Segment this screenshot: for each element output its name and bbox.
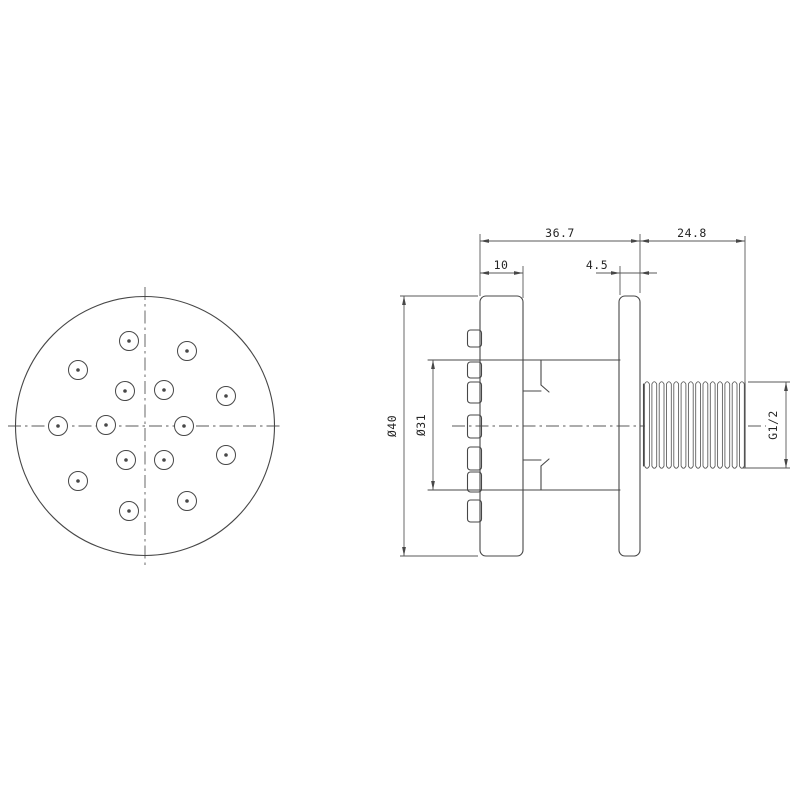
thread-crest [659, 382, 664, 469]
nozzle-center-dot [224, 394, 228, 398]
dimension-arrowhead [611, 271, 620, 275]
dimension-arrowhead [431, 481, 435, 490]
dim-label-outer-diameter: Ø40 [385, 415, 399, 437]
dim-outer-diameter: Ø40 [385, 296, 406, 556]
nozzle-center-dot [224, 453, 228, 457]
nozzle-center-dot [185, 349, 189, 353]
dim-thread-length: 24.8 [640, 226, 745, 243]
dim-label-faceplate-thickness: 10 [494, 258, 509, 272]
dimension-arrowhead [514, 271, 523, 275]
dimension-arrowhead [784, 459, 788, 468]
thread-crest [652, 382, 657, 469]
dimension-arrowhead [402, 547, 406, 556]
nozzle-tab [468, 472, 482, 492]
dim-label-flange-thickness: 4.5 [586, 258, 608, 272]
thread-crest [688, 382, 693, 469]
nozzle-center-dot [76, 368, 80, 372]
extension-lines [400, 234, 790, 556]
nozzle-center-dot [104, 423, 108, 427]
drawing-canvas: 36.724.8104.5Ø40Ø31G1/2 [0, 0, 800, 800]
nozzle-tab [468, 382, 482, 403]
dimension-arrowhead [784, 382, 788, 391]
thread-section [645, 382, 745, 469]
thread-crest [696, 382, 701, 469]
nozzle-center-dot [123, 389, 127, 393]
nozzle-tab [468, 447, 482, 470]
dim-thread-spec: G1/2 [766, 382, 788, 468]
thread-crest [740, 382, 745, 469]
nozzle-tab [468, 500, 482, 522]
dim-label-thread-spec: G1/2 [766, 410, 780, 440]
nozzle-tab [468, 415, 482, 438]
nozzle-tab [468, 330, 482, 347]
dimension-arrowhead [736, 239, 745, 243]
thread-crest [725, 382, 730, 469]
dim-top-width: 36.7 [480, 226, 640, 243]
dim-flange-thickness: 4.5 [586, 258, 657, 275]
nozzle-center-dot [162, 388, 166, 392]
dim-label-thread-length: 24.8 [677, 226, 707, 240]
thread-crest [645, 382, 650, 469]
side-view [428, 296, 766, 556]
nozzle-center-dot [127, 339, 131, 343]
dimension-arrowhead [631, 239, 640, 243]
thread-crest [681, 382, 686, 469]
thread-crest [667, 382, 672, 469]
dim-label-body-diameter: Ø31 [414, 414, 428, 436]
thread-crest [703, 382, 708, 469]
dimension-arrowhead [640, 239, 649, 243]
dimension-arrowhead [480, 271, 489, 275]
front-view [8, 287, 283, 565]
thread-crest [732, 382, 737, 469]
nozzle-center-dot [56, 424, 60, 428]
nozzle-center-dot [127, 509, 131, 513]
dim-label-top-width: 36.7 [545, 226, 575, 240]
dimension-arrowhead [431, 360, 435, 369]
technical-drawing-svg: 36.724.8104.5Ø40Ø31G1/2 [0, 0, 800, 800]
thread-crest [710, 382, 715, 469]
nozzle-center-dot [162, 458, 166, 462]
nozzle-center-dot [76, 479, 80, 483]
thread-crest [674, 382, 679, 469]
thread-crest [718, 382, 723, 469]
nozzle-tab [468, 362, 482, 378]
nozzle-center-dot [182, 424, 186, 428]
dimension-arrowhead [640, 271, 649, 275]
nozzle-center-dot [185, 499, 189, 503]
dim-faceplate-thickness: 10 [480, 258, 523, 275]
dimension-arrowhead [402, 296, 406, 305]
dimension-arrowhead [480, 239, 489, 243]
nozzle-center-dot [124, 458, 128, 462]
dim-body-diameter: Ø31 [414, 360, 435, 490]
